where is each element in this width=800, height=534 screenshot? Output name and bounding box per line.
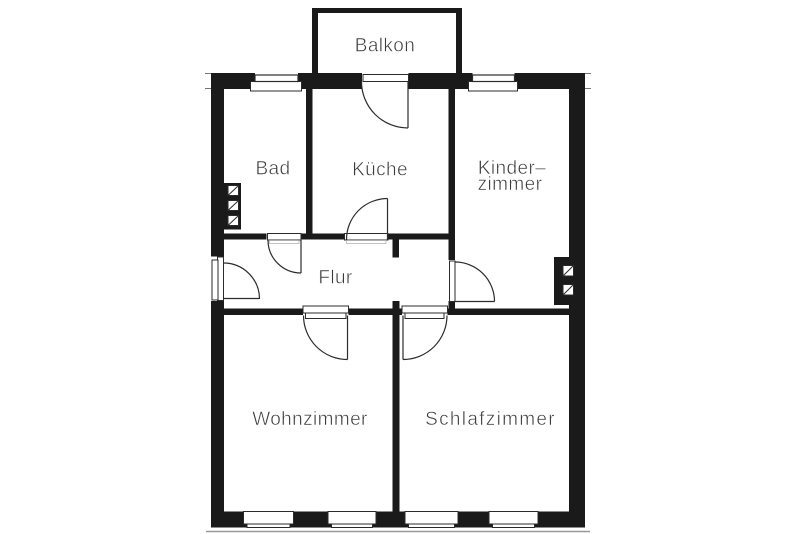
svg-text:Schlafzimmer: Schlafzimmer	[425, 409, 556, 430]
svg-text:Küche: Küche	[352, 160, 408, 181]
svg-text:zimmer: zimmer	[478, 174, 543, 195]
svg-text:Balkon: Balkon	[355, 36, 416, 57]
svg-text:Bad: Bad	[255, 159, 290, 180]
svg-text:Wohnzimmer: Wohnzimmer	[252, 409, 368, 430]
svg-text:Flur: Flur	[318, 268, 353, 289]
